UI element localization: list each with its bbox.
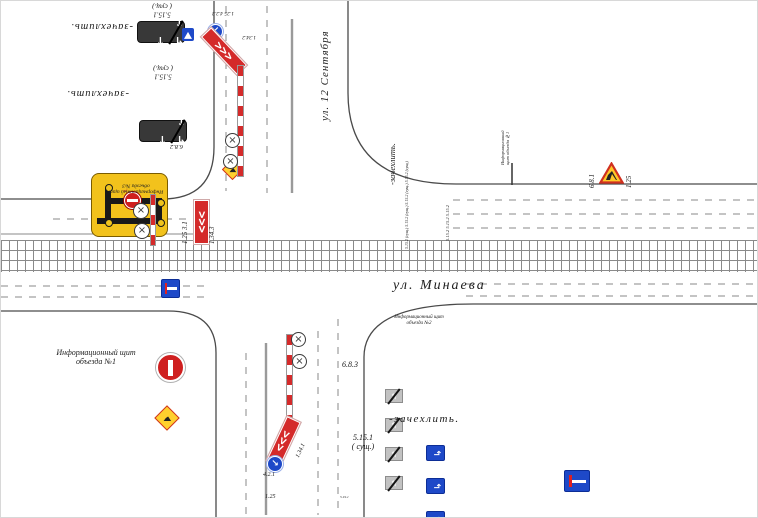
crossed-lamp-icon	[225, 133, 240, 148]
pedestrian-crossing-sign-icon	[182, 28, 194, 41]
dead-end-sign-681	[564, 470, 590, 492]
shield-1-caption: Информационный щит объезда №1	[41, 348, 151, 366]
crossed-lamp-icon	[134, 223, 150, 239]
shield-2-caption: Информационный щит объезда №2	[373, 315, 465, 327]
caption-line: объезда №2	[373, 321, 465, 327]
cover-stroke-icon	[387, 388, 400, 404]
sign-label-1342: 1.34.2	[232, 34, 256, 40]
chevron-board-1343	[194, 200, 209, 244]
lane-sign-5152-blue	[426, 511, 445, 518]
caption-line: объезда №1	[41, 357, 151, 366]
existing-note: ( сущ.)	[153, 64, 173, 72]
cover-stroke-icon	[387, 446, 400, 462]
sign-code: 5.15.1	[154, 72, 172, 80]
lane-sign-existing-gray	[385, 476, 403, 490]
cover-stroke-icon	[387, 475, 400, 491]
roadworks-triangle-sign	[599, 162, 624, 189]
junction-node	[157, 219, 165, 227]
sign-label-125-422: 1.25 4.2.2	[202, 10, 244, 16]
bypass-right-sign-421	[267, 456, 283, 472]
sign-label-683: 6.8.3	[342, 360, 370, 369]
street-label-vertical: ул. 12 Сентября	[319, 16, 337, 121]
lane-sign-5151-top2	[139, 120, 187, 142]
lane-sign-existing-gray	[385, 447, 403, 461]
lane-sign-existing-gray	[385, 389, 403, 403]
pole-note-line: щит объезда №1	[505, 95, 510, 165]
sign-label-125-bottom: 1.25	[265, 494, 287, 500]
existing-note: ( сущ.)	[152, 2, 172, 10]
dead-end-sign-682	[161, 279, 180, 298]
barrier-post-left	[150, 194, 156, 246]
junction-node	[105, 219, 113, 227]
caption-line: Информационный щит	[41, 348, 151, 357]
junction-node	[157, 199, 165, 207]
existing-note: ( сущ.)	[352, 443, 374, 452]
cover-note-top2: -зачехлить.	[9, 88, 129, 99]
info-shield-pole-note: Информационный щит объезда №1	[500, 95, 518, 165]
sign-label-125-right: 1.25	[625, 162, 633, 188]
sign-label-421: 4.2.1	[263, 472, 287, 478]
sign-label-681: 6.8.1	[588, 162, 596, 188]
no-entry-sign-31	[156, 353, 185, 382]
caption-line: объезда №3	[96, 182, 176, 188]
street-label-horizontal: ул. Минаева	[393, 278, 513, 294]
cover-note-center: -зачехлить.	[387, 125, 397, 185]
sign-label-5151-bottom: 5.15.1 ( сущ.)	[341, 434, 385, 452]
crossed-lamp-icon	[291, 332, 306, 347]
barrier-pole-bottom	[286, 334, 293, 419]
traffic-scheme-canvas: ул. 12 Сентября ул. Минаева 5.15.1 ( сущ…	[0, 0, 758, 518]
sign-label-682: 6.8.2	[157, 143, 183, 150]
worker-icon	[163, 414, 172, 422]
crossed-lamp-icon	[133, 203, 149, 219]
sign-label-strip-gray: 5.15.2 (сущ.) 5.15.2 (сущ.) 5.15.2 (сущ.…	[404, 185, 409, 249]
shield-3-caption: Информационный щит объезда №3	[96, 182, 176, 195]
lane-sign-5151-top1	[137, 21, 185, 43]
barrier-pole-top	[237, 65, 244, 177]
cover-note-top1: -зачехлить.	[13, 21, 133, 32]
tram-track-band	[1, 240, 758, 272]
crossed-lamp-icon	[223, 154, 238, 169]
lane-sign-5152-blue	[426, 478, 445, 494]
sign-label-1343: 1.34.3	[208, 198, 216, 244]
sign-label-5151-top2: 5.15.1 ( сущ.)	[140, 64, 186, 80]
sign-label-5191: 5.19.1	[340, 495, 360, 499]
lane-sign-5152-blue	[426, 445, 445, 461]
crossed-lamp-icon	[292, 354, 307, 369]
cover-note-bottom: -зачехлить.	[389, 413, 499, 425]
sign-label-125-31: 1.25 3.1	[181, 200, 189, 244]
sign-label-strip-blue: 5.15.2 5.15.2 5.15.2	[445, 185, 450, 241]
caption-line: Информационный щит	[96, 188, 176, 194]
